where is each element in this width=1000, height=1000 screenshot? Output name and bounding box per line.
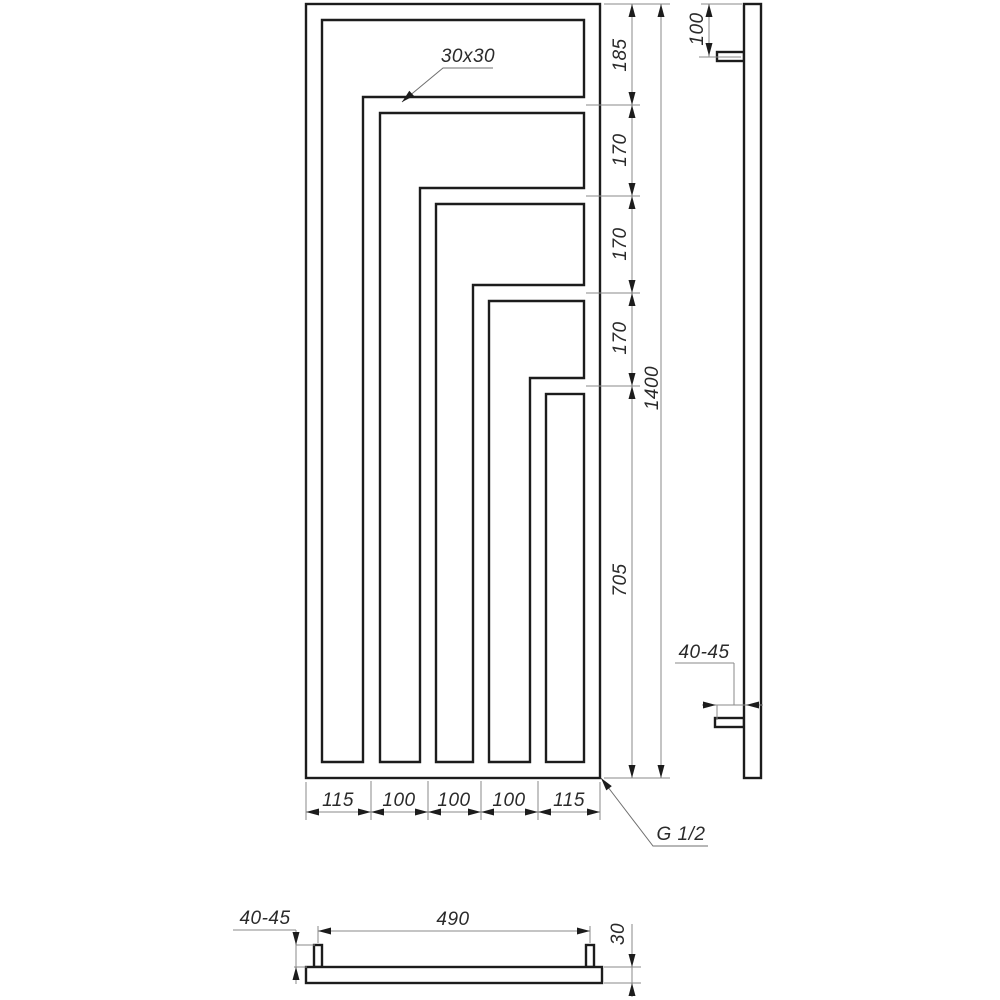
width-dimension-chain: 115 100 100 100 115 xyxy=(306,781,600,820)
dim-width-115-left: 115 xyxy=(322,790,354,811)
dim-height-185: 185 xyxy=(610,38,631,71)
tube-gap-5 xyxy=(546,394,584,762)
dim-height-705: 705 xyxy=(610,563,631,596)
technical-drawing: 185 170 170 170 705 1400 115 100 100 100… xyxy=(0,0,1000,1000)
front-view xyxy=(306,4,600,778)
dim-connector-height-40-45: 40-45 xyxy=(239,908,290,929)
dim-width-100-1: 100 xyxy=(382,790,415,811)
dim-overall-height-1400: 1400 xyxy=(642,366,663,410)
thread-size-label: G 1/2 xyxy=(657,824,706,845)
dim-connector-spacing-490: 490 xyxy=(436,909,469,930)
dim-height-170-1: 170 xyxy=(610,133,631,166)
dim-wall-bracket-40-45: 40-45 xyxy=(678,642,729,663)
bottom-collector-bar xyxy=(306,967,602,983)
connector-stub-right xyxy=(586,945,594,967)
dim-tube-depth-30: 30 xyxy=(608,923,629,945)
dim-width-115-right: 115 xyxy=(553,790,585,811)
dim-height-170-3: 170 xyxy=(610,321,631,354)
dim-height-170-2: 170 xyxy=(610,227,631,260)
profile-size-label: 30x30 xyxy=(441,46,495,67)
dim-connector-offset-100: 100 xyxy=(687,12,708,45)
dim-width-100-2: 100 xyxy=(437,790,470,811)
side-profile-bar xyxy=(744,4,761,778)
wall-bracket-bottom xyxy=(715,718,744,727)
drawing-page: 185 170 170 170 705 1400 115 100 100 100… xyxy=(0,0,1000,1000)
connector-stub-left xyxy=(314,945,322,967)
dim-width-100-3: 100 xyxy=(492,790,525,811)
bottom-view xyxy=(306,945,602,983)
thread-callout: G 1/2 xyxy=(601,778,708,846)
